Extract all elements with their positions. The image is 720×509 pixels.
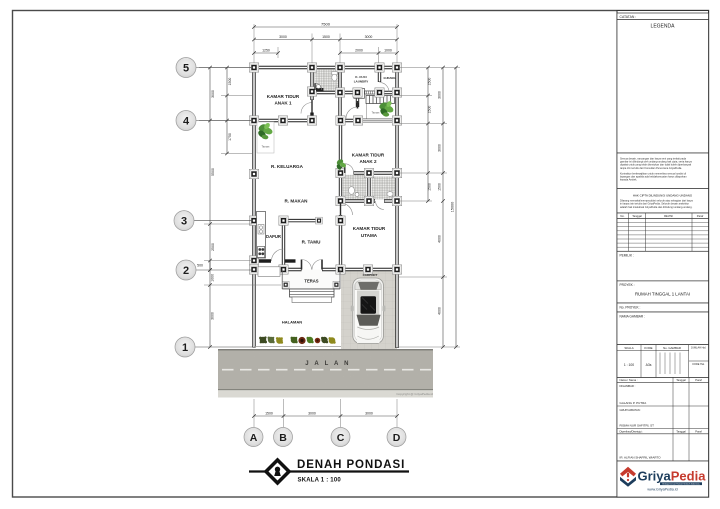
- svg-text:DIGAMBAR :: DIGAMBAR :: [620, 384, 636, 388]
- svg-text:SKALA 1 : 100: SKALA 1 : 100: [298, 478, 342, 484]
- svg-text:UTAMA: UTAMA: [361, 233, 378, 238]
- svg-text:1000: 1000: [211, 274, 215, 282]
- svg-text:KAMAR TIDUR: KAMAR TIDUR: [353, 226, 386, 231]
- svg-text:A3s: A3s: [646, 363, 652, 367]
- svg-text:NAMA GAMBAR :: NAMA GAMBAR :: [620, 315, 646, 319]
- svg-text:TERAS: TERAS: [304, 279, 318, 284]
- svg-text:ANAK 1: ANAK 1: [274, 101, 292, 106]
- svg-text:tanpa izin tertulis dari Konsu: tanpa izin tertulis dari Konsultan Peren…: [620, 167, 682, 170]
- svg-text:1250: 1250: [262, 48, 270, 52]
- svg-text:R. TAMU: R. TAMU: [302, 240, 321, 245]
- svg-text:Paraf: Paraf: [695, 430, 702, 434]
- svg-text:Paraf: Paraf: [697, 214, 704, 218]
- svg-text:Diperiksa/Disetujui :: Diperiksa/Disetujui :: [620, 430, 644, 434]
- svg-text:500: 500: [197, 264, 203, 268]
- svg-text:3000: 3000: [438, 91, 442, 99]
- svg-text:2500: 2500: [211, 243, 215, 251]
- svg-text:No.: No.: [620, 214, 624, 218]
- svg-text:1 : 100: 1 : 100: [624, 363, 634, 367]
- svg-text:5500: 5500: [211, 168, 215, 176]
- svg-text:kepada Arsitek.: kepada Arsitek.: [620, 179, 637, 182]
- svg-text:J A L A N: J A L A N: [305, 361, 350, 367]
- svg-text:RISMA NUR SAFITRI, ST: RISMA NUR SAFITRI, ST: [620, 424, 655, 428]
- svg-text:LEGENDA: LEGENDA: [651, 24, 676, 30]
- svg-text:Nama / Nama :: Nama / Nama :: [620, 378, 638, 382]
- svg-text:3000: 3000: [365, 35, 373, 39]
- svg-text:RUMAH TINGGAL 1 LANTAI: RUMAH TINGGAL 1 LANTAI: [635, 292, 690, 297]
- svg-text:Taman: Taman: [262, 145, 270, 149]
- svg-text:www.GriyaPedia.id: www.GriyaPedia.id: [647, 488, 677, 492]
- svg-text:C: C: [337, 432, 345, 444]
- svg-text:GriyaPedia: GriyaPedia: [638, 469, 707, 484]
- svg-text:REVISI: REVISI: [664, 214, 673, 218]
- svg-text:5: 5: [183, 63, 189, 75]
- svg-text:Paraf: Paraf: [695, 378, 702, 382]
- svg-text:Tanggal: Tanggal: [632, 214, 642, 218]
- svg-text:IR. ALFIAN SHAFRIL WIARTO: IR. ALFIAN SHAFRIL WIARTO: [620, 456, 662, 460]
- svg-text:DAPUR: DAPUR: [266, 234, 281, 239]
- svg-text:Tanggal: Tanggal: [676, 378, 686, 382]
- svg-text:KODE: KODE: [644, 346, 652, 350]
- svg-text:JUMLAH Hal.: JUMLAH Hal.: [691, 347, 706, 350]
- svg-text:1500: 1500: [428, 78, 432, 86]
- svg-text:PROYEK :: PROYEK :: [620, 283, 635, 287]
- svg-text:7500: 7500: [321, 21, 331, 26]
- svg-text:HALAMAN: HALAMAN: [282, 320, 302, 325]
- svg-text:adalah hak intelektual GriyaPe: adalah hak intelektual GriyaPedia dan di…: [620, 206, 693, 209]
- svg-text:LAUNDRY: LAUNDRY: [354, 80, 369, 84]
- svg-text:R. MAKAN: R. MAKAN: [285, 199, 309, 204]
- svg-text:1000: 1000: [384, 48, 392, 52]
- svg-text:1500: 1500: [438, 183, 442, 191]
- svg-text:A: A: [250, 432, 258, 444]
- svg-text:B: B: [279, 432, 287, 444]
- svg-text:Belanja Desain Rumah Seluruh I: Belanja Desain Rumah Seluruh Indonesia: [662, 484, 700, 486]
- svg-text:PEMILIK :: PEMILIK :: [620, 254, 634, 258]
- svg-text:No. PROYEK :: No. PROYEK :: [620, 306, 641, 310]
- svg-text:KAMAR TIDUR: KAMAR TIDUR: [352, 153, 385, 158]
- svg-text:3000: 3000: [365, 411, 373, 415]
- svg-text:CARPORT: CARPORT: [363, 273, 378, 277]
- svg-text:SKALA: SKALA: [624, 346, 633, 350]
- svg-text:4000: 4000: [438, 307, 442, 315]
- svg-text:1500: 1500: [428, 183, 432, 191]
- svg-text:15000: 15000: [451, 202, 455, 213]
- svg-text:GALANG P. PUTRA: GALANG P. PUTRA: [620, 401, 647, 405]
- svg-text:GUDANG: GUDANG: [384, 76, 396, 80]
- svg-text:HAK CIPTA DILINDUNGI UNDANG-UN: HAK CIPTA DILINDUNGI UNDANG-UNDANG: [633, 194, 693, 198]
- svg-text:Copyright @ GriyaPedia.id: Copyright @ GriyaPedia.id: [396, 392, 433, 396]
- svg-text:3000: 3000: [438, 144, 442, 152]
- svg-text:1500: 1500: [428, 106, 432, 114]
- svg-text:KODE Hal.: KODE Hal.: [692, 363, 705, 366]
- svg-text:GRUP/JABATAN :: GRUP/JABATAN :: [620, 408, 642, 412]
- svg-text:CATATAN :: CATATAN :: [620, 15, 637, 19]
- svg-text:2: 2: [183, 265, 189, 277]
- svg-text:3000: 3000: [279, 35, 287, 39]
- svg-text:No. GAMBAR: No. GAMBAR: [663, 346, 681, 350]
- svg-text:R. KELUARGA: R. KELUARGA: [271, 164, 304, 169]
- svg-text:3: 3: [181, 216, 187, 228]
- svg-text:2000: 2000: [355, 48, 363, 52]
- svg-text:4: 4: [183, 116, 190, 128]
- svg-text:Taman: Taman: [372, 111, 380, 115]
- svg-text:ANAK 2: ANAK 2: [359, 159, 377, 164]
- svg-text:1500: 1500: [322, 35, 330, 39]
- svg-text:1500: 1500: [265, 411, 273, 415]
- svg-text:3000: 3000: [211, 90, 215, 98]
- svg-text:3000: 3000: [211, 312, 215, 320]
- svg-text:1750: 1750: [228, 133, 232, 141]
- svg-text:4000: 4000: [438, 235, 442, 243]
- svg-text:KAMAR TIDUR: KAMAR TIDUR: [267, 94, 300, 99]
- svg-text:DENAH PONDASI: DENAH PONDASI: [297, 459, 405, 471]
- svg-text:D: D: [393, 432, 401, 444]
- svg-text:Tanggal: Tanggal: [676, 430, 686, 434]
- svg-text:3000: 3000: [308, 411, 316, 415]
- svg-text:1: 1: [182, 342, 188, 354]
- svg-text:1500: 1500: [228, 78, 232, 86]
